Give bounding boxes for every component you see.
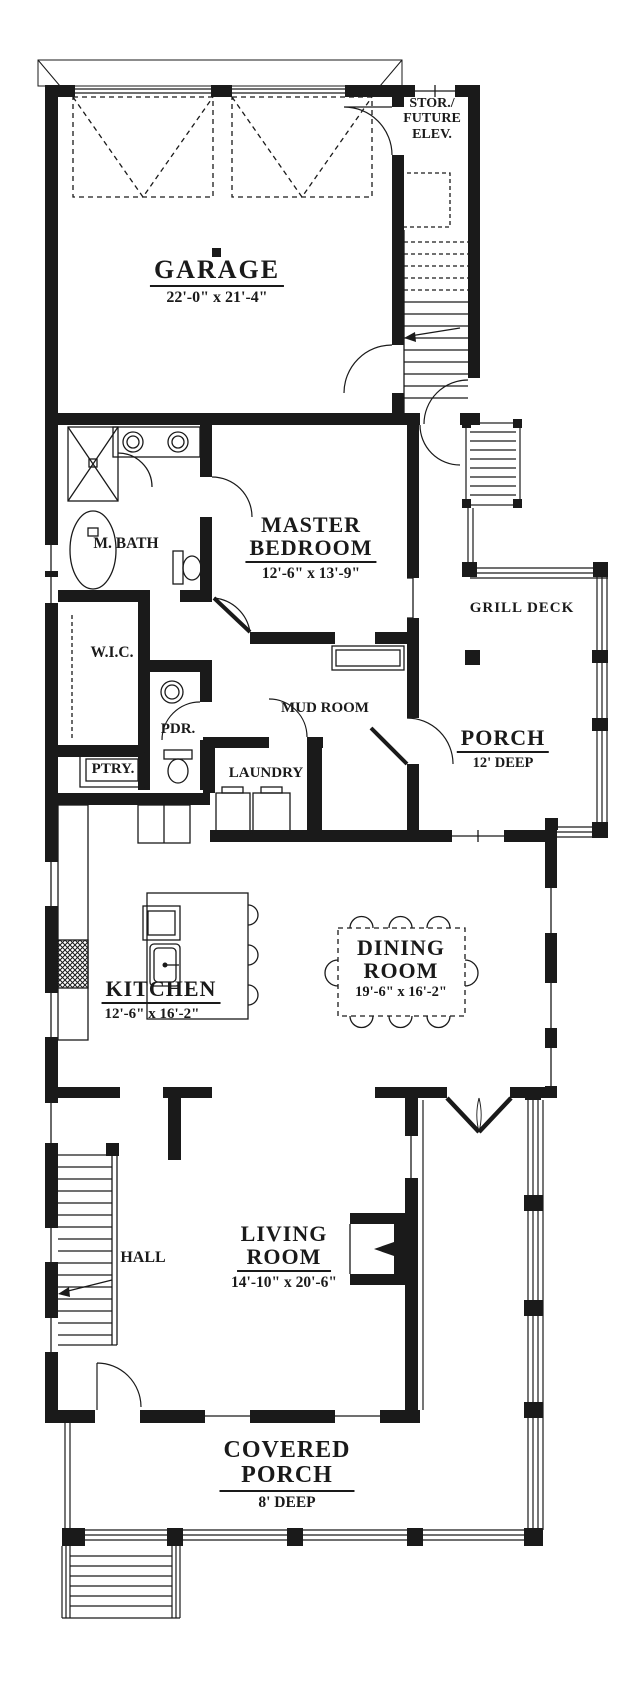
washer-dryer [216, 787, 290, 833]
porch-posts [462, 419, 608, 838]
garage-door-panel [73, 97, 372, 197]
stools [248, 905, 258, 1005]
master-bath-label: M. BATH [93, 536, 158, 552]
mud-room-label: MUD ROOM [281, 701, 369, 717]
eave-outline [38, 60, 402, 86]
wic-label: W.I.C. [91, 645, 134, 661]
living-dim: 14'-10" x 20'-6" [231, 1275, 337, 1291]
angled-door-leaf [214, 598, 250, 632]
storage-closet [400, 173, 450, 227]
grill-deck-label: GRILL DECK [470, 601, 575, 617]
grill-marker [465, 650, 480, 665]
range [58, 940, 88, 988]
master-bedroom-name: MASTER BEDROOM [245, 513, 376, 563]
living-name: LIVING ROOM [237, 1222, 332, 1272]
refrigerator [138, 805, 190, 843]
hall-stairs [58, 1143, 119, 1345]
french-doors [447, 1098, 511, 1132]
fireplace [350, 1213, 406, 1285]
covered-porch-label: COVERED PORCH 8' DEEP [219, 1438, 354, 1512]
garage-dim: 22'-0" x 21'-4" [150, 290, 284, 307]
garage-label: GARAGE 22'-0" x 21'-4" [150, 256, 284, 307]
living-label: LIVING ROOM 14'-10" x 20'-6" [231, 1222, 337, 1291]
vanity [113, 427, 200, 457]
master-bedroom-dim: 12'-6" x 13'-9" [245, 566, 376, 582]
kitchen-name: KITCHEN [102, 977, 221, 1004]
garage-name: GARAGE [150, 256, 284, 287]
powder-sink [161, 681, 183, 703]
entry-landing [466, 423, 520, 562]
storage-label: STOR./ FUTURE ELEV. [403, 96, 461, 142]
newel-post [106, 1143, 119, 1156]
powder-label: PDR. [161, 722, 196, 738]
front-steps [62, 1546, 180, 1618]
angled-door-leaf [371, 728, 407, 764]
laundry-label: LAUNDRY [229, 766, 303, 782]
floor-plan: GARAGE 22'-0" x 21'-4" STOR./ FUTURE ELE… [0, 0, 636, 1700]
porch-name: PORCH [457, 726, 549, 753]
stair-arrow [410, 328, 460, 336]
shower [68, 427, 152, 501]
covered-porch-name: COVERED PORCH [219, 1438, 354, 1492]
hall-label: HALL [120, 1250, 165, 1267]
mudroom-bench [332, 646, 404, 670]
stair-arrow [64, 1280, 112, 1292]
kitchen-label: KITCHEN 12'-6" x 16'-2" [102, 977, 221, 1023]
side-porch [462, 419, 608, 838]
toilet [173, 551, 201, 584]
dining-label: DINING ROOM 19'-6" x 16'-2" [355, 936, 447, 1000]
covered-porch-dim: 8' DEEP [219, 1495, 354, 1511]
master-bedroom-label: MASTER BEDROOM 12'-6" x 13'-9" [245, 513, 376, 582]
covered-porch-structure [62, 1087, 543, 1618]
counter [58, 805, 88, 1040]
powder-toilet [164, 750, 192, 783]
kitchen-dim: 12'-6" x 16'-2" [84, 1007, 221, 1023]
porch-railing [470, 568, 608, 578]
upper-stairs [400, 173, 468, 413]
dining-dim: 19'-6" x 16'-2" [355, 985, 447, 1000]
porch-label: PORCH 12' DEEP [457, 726, 549, 771]
porch-dim: 12' DEEP [457, 756, 549, 771]
pantry-label: PTRY. [92, 762, 135, 778]
